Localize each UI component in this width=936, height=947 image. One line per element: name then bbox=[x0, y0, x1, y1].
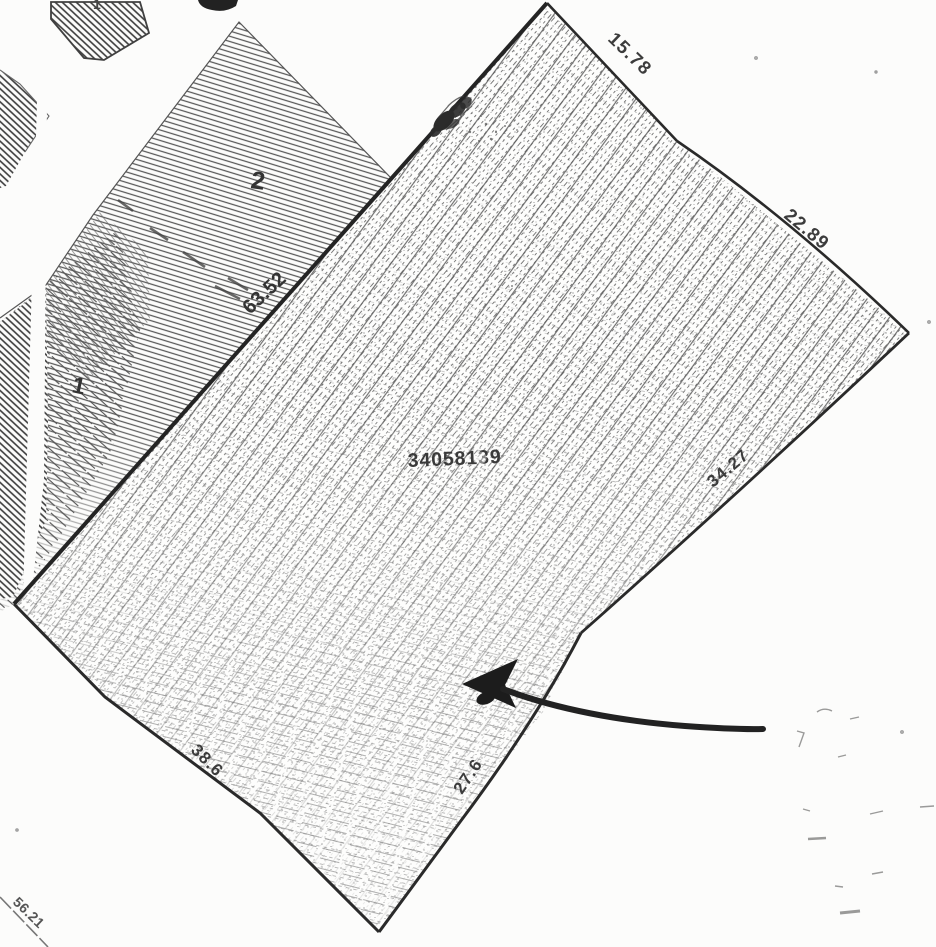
svg-text:34058139: 34058139 bbox=[407, 446, 502, 472]
svg-text:1: 1 bbox=[93, 0, 101, 12]
